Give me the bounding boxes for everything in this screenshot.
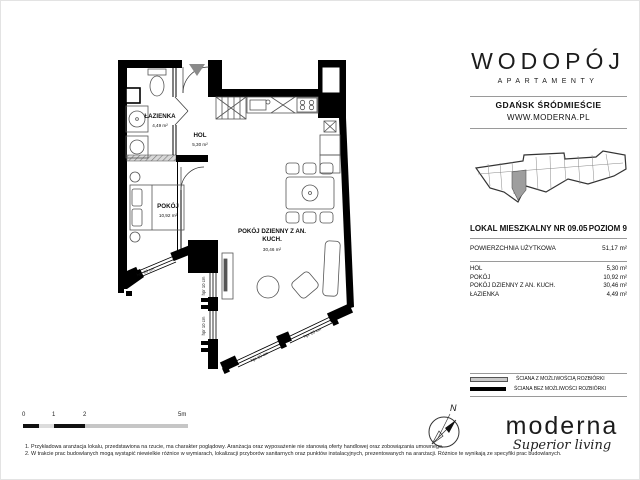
sill-label: hpr 10 cm	[201, 276, 206, 295]
divider	[470, 396, 627, 397]
compass-north-label: N	[450, 403, 457, 413]
windows	[136, 256, 332, 367]
scale-segment	[85, 424, 188, 428]
legend-label: ŚCIANA Z MOŻLIWOŚCIĄ ROZBIÓRKI	[516, 376, 605, 382]
scale-segment	[54, 424, 85, 428]
room-row: ŁAZIENKA 4,49 m²	[470, 291, 627, 300]
usable-area-value: 51,17 m²	[602, 245, 627, 252]
coffee-table-icon	[257, 276, 279, 298]
stove-icon	[297, 98, 317, 112]
unit-header: LOKAL MIESZKALNY NR 09.05 POZIOM 9	[470, 224, 627, 233]
room-area: 10,92 m²	[603, 274, 627, 283]
window-sill-labels: hpr 10 cm hpr 10 cm hpr 10 cm hpr 10 cm …	[136, 266, 322, 363]
shaft-box	[126, 88, 140, 103]
unit-level: POZIOM 9	[589, 224, 627, 233]
room-row: POKÓJ DZIENNY Z AN. KUCH. 30,46 m²	[470, 282, 627, 291]
room-area-living: 30,46 m²	[263, 247, 282, 252]
usable-area-label: POWIERZCHNIA UŻYTKOWA	[470, 245, 556, 252]
washing-machine-icon	[126, 136, 148, 158]
scale-segment	[23, 424, 39, 428]
footnotes: 1. Przykładowa aranżacja lokalu, przedst…	[25, 444, 600, 457]
kitchen-counter	[247, 97, 318, 113]
website-label: WWW.MODERNA.PL	[470, 113, 627, 122]
dining-table-icon	[286, 163, 334, 223]
cabinet-icon	[320, 155, 340, 173]
room-list: HOL 5,30 m² POKÓJ 10,92 m² POKÓJ DZIENNY…	[470, 265, 627, 299]
sill-label: hpr 10 cm	[250, 350, 269, 363]
developer-name: moderna	[492, 412, 632, 441]
footnote-2: 2. W trakcie prac budowlanych mogą wystą…	[25, 451, 600, 458]
brand-subtitle: APARTAMENTY	[458, 78, 638, 85]
room-area: 30,46 m²	[603, 282, 627, 291]
legend-row: ŚCIANA BEZ MOŻLIWOŚCI ROZBIÓRKI	[470, 384, 627, 394]
legend-swatch-demolishable	[470, 377, 508, 382]
wall-legend: ŚCIANA Z MOŻLIWOŚCIĄ ROZBIÓRKI ŚCIANA BE…	[470, 374, 627, 394]
room-area: 5,30 m²	[607, 265, 627, 274]
room-row: HOL 5,30 m²	[470, 265, 627, 274]
scale-segment	[39, 424, 54, 428]
sill-label: hpr 10 cm	[201, 316, 206, 335]
wardrobe-icon	[216, 97, 246, 119]
brand-logo: WODOPÓJ APARTAMENTY	[458, 48, 638, 85]
divider	[470, 96, 627, 97]
legend-label: ŚCIANA BEZ MOŻLIWOŚCI ROZBIÓRKI	[514, 386, 606, 392]
tv-icon	[224, 259, 227, 291]
floor-plan: hpr 10 cm hpr 10 cm hpr 10 cm hpr 10 cm …	[80, 45, 370, 375]
toilet-icon	[148, 69, 166, 96]
brand-name: WODOPÓJ	[458, 48, 638, 75]
armchair-icon	[290, 270, 320, 299]
usable-area-row: POWIERZCHNIA UŻYTKOWA 51,17 m²	[470, 245, 627, 252]
room-name: POKÓJ	[470, 274, 490, 283]
room-row: POKÓJ 10,92 m²	[470, 274, 627, 283]
room-label-bedroom: POKÓJ	[157, 202, 179, 210]
scale-tick: 5m	[178, 412, 186, 418]
scale-tick: 0	[22, 412, 25, 418]
room-area-bathroom: 4,49 m²	[152, 123, 168, 128]
room-name: HOL	[470, 265, 482, 274]
legend-swatch-structural	[470, 387, 506, 391]
building-key-map	[468, 146, 628, 216]
divider	[470, 238, 627, 239]
room-label-bathroom: ŁAZIENKA	[144, 113, 176, 120]
footnote-1: 1. Przykładowa aranżacja lokalu, przedst…	[25, 444, 600, 451]
floorplan-brochure-page: hpr 10 cm hpr 10 cm hpr 10 cm hpr 10 cm …	[0, 0, 640, 480]
utility-shaft-icon	[324, 121, 336, 132]
sofa-icon	[323, 241, 341, 297]
divider	[470, 128, 627, 129]
sink-icon	[250, 100, 270, 110]
room-name: POKÓJ DZIENNY Z AN. KUCH.	[470, 282, 555, 291]
scale-tick: 2	[83, 412, 86, 418]
unit-title: LOKAL MIESZKALNY NR 09.05	[470, 224, 588, 233]
room-area-hall: 5,30 m²	[192, 142, 208, 147]
legend-row: ŚCIANA Z MOŻLIWOŚCIĄ ROZBIÓRKI	[470, 374, 627, 384]
fridge-icon	[320, 135, 340, 155]
room-area: 4,49 m²	[607, 291, 627, 300]
scale-tick: 1	[52, 412, 55, 418]
location-label: GDAŃSK ŚRÓDMIEŚCIE	[470, 100, 627, 110]
doors	[175, 67, 209, 190]
room-label-hall: HOL	[193, 132, 206, 139]
divider	[470, 261, 627, 262]
room-name: ŁAZIENKA	[470, 291, 499, 300]
room-area-bedroom: 10,92 m²	[159, 213, 178, 218]
room-label-living-2: KUCH.	[262, 236, 282, 243]
room-label-living-1: POKÓJ DZIENNY Z AN.	[238, 227, 306, 235]
